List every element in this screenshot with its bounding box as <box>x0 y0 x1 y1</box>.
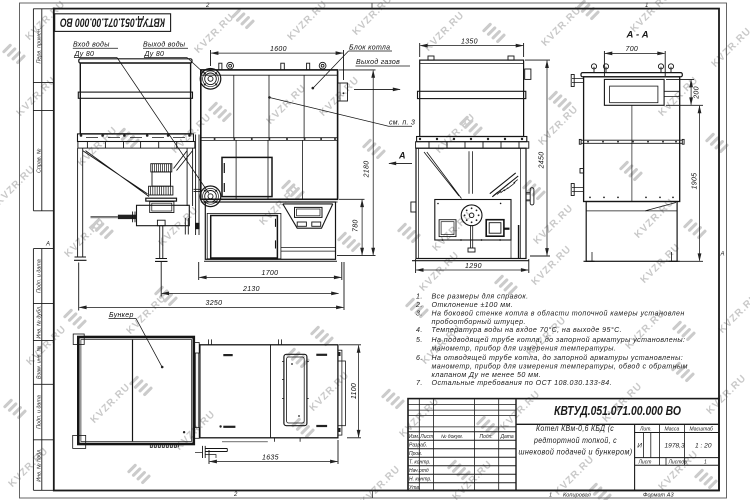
svg-text:Справ. №: Справ. № <box>36 148 42 173</box>
svg-text:И: И <box>637 443 642 450</box>
svg-text:KVZR.RU: KVZR.RU <box>25 324 69 368</box>
svg-text:1905: 1905 <box>692 173 699 190</box>
svg-text:шнековой подачей и бункером): шнековой подачей и бункером) <box>519 447 633 456</box>
svg-text:Выход газов: Выход газов <box>356 58 400 66</box>
svg-text:KVZR.RU: KVZR.RU <box>717 292 750 336</box>
svg-text:Разраб.: Разраб. <box>409 443 427 449</box>
svg-text:На подводящей трубе котла, до: На подводящей трубе котла, до запорной а… <box>432 336 686 344</box>
svg-text:Дата: Дата <box>500 434 514 440</box>
svg-text:А - А: А - А <box>626 30 649 41</box>
svg-text:KVZR.RU: KVZR.RU <box>434 112 478 156</box>
svg-text:KVZR.RU: KVZR.RU <box>89 382 133 426</box>
svg-text:KVZR.RU: KVZR.RU <box>540 5 584 49</box>
svg-text:7.: 7. <box>416 379 423 387</box>
svg-text:KVZR.RU: KVZR.RU <box>193 12 237 56</box>
svg-text:1350: 1350 <box>461 38 478 45</box>
svg-text:2: 2 <box>205 3 210 9</box>
svg-text:Листов: Листов <box>668 459 688 465</box>
svg-text:Подп. и дата: Подп. и дата <box>36 395 42 429</box>
svg-text:Подп.: Подп. <box>480 434 493 440</box>
svg-text:2180: 2180 <box>364 161 371 179</box>
svg-text:манометр, прибор для измерения: манометр, прибор для измерения температу… <box>432 362 688 370</box>
svg-text:KVZR.RU: KVZR.RU <box>418 250 462 294</box>
svg-text:1: 1 <box>549 493 552 499</box>
svg-text:Все размеры для справок.: Все размеры для справок. <box>432 293 529 301</box>
svg-text:1: 1 <box>704 459 707 465</box>
svg-text:3.: 3. <box>416 309 423 317</box>
svg-text:Остальные требования по ОСТ 10: Остальные требования по ОСТ 108.030.133-… <box>432 379 613 387</box>
svg-text:А: А <box>45 242 50 248</box>
svg-text:Т. контр.: Т. контр. <box>409 460 431 466</box>
svg-text:5.: 5. <box>416 336 423 344</box>
svg-text:KVZR.RU: KVZR.RU <box>63 216 107 260</box>
svg-text:2450: 2450 <box>539 152 546 170</box>
svg-text:1635: 1635 <box>262 454 279 461</box>
svg-text:700: 700 <box>626 46 639 53</box>
svg-text:манометр, прибор для измерения: манометр, прибор для измерения температу… <box>432 344 617 352</box>
svg-text:1700: 1700 <box>262 270 279 277</box>
svg-text:Бункер: Бункер <box>109 312 134 319</box>
svg-text:Нач.отд: Нач.отд <box>409 468 429 474</box>
svg-text:Утв.: Утв. <box>409 485 420 491</box>
svg-text:Выход воды: Выход воды <box>143 41 186 49</box>
svg-text:2: 2 <box>233 492 238 498</box>
svg-text:А: А <box>720 252 725 258</box>
svg-text:№ докум.: № докум. <box>441 434 463 440</box>
svg-text:Лит.: Лит. <box>639 427 652 433</box>
svg-text:КВТУД.051.071.00.000 ВО: КВТУД.051.071.00.000 ВО <box>60 16 165 28</box>
svg-text:редтортной топкой, с: редтортной топкой, с <box>533 436 617 445</box>
svg-text:KVZR.RU: KVZR.RU <box>532 203 576 247</box>
svg-text:Лист: Лист <box>419 434 433 440</box>
svg-text:KVZR.RU: KVZR.RU <box>351 0 395 38</box>
svg-text:клапаном Ду не менее 50 мм.: клапаном Ду не менее 50 мм. <box>432 371 542 379</box>
svg-text:KVZR.RU: KVZR.RU <box>537 104 581 148</box>
svg-text:KVZR.RU: KVZR.RU <box>0 164 38 208</box>
svg-text:Блок котла: Блок котла <box>349 44 390 51</box>
svg-text:1600: 1600 <box>270 46 287 53</box>
svg-text:На отводящей трубе котла, до з: На отводящей трубе котла, до запорной ар… <box>432 354 684 362</box>
svg-text:Масса: Масса <box>665 427 680 433</box>
svg-text:KVZR.RU: KVZR.RU <box>530 244 574 288</box>
svg-text:KVZR.RU: KVZR.RU <box>601 381 645 425</box>
svg-text:KVZR.RU: KVZR.RU <box>633 197 677 241</box>
svg-text:KVZR.RU: KVZR.RU <box>359 464 403 500</box>
svg-text:Ду 80: Ду 80 <box>144 51 165 58</box>
svg-text:пробоотборный штуцер.: пробоотборный штуцер. <box>432 318 526 326</box>
svg-text:Температура воды на вхдое 70°С: Температура воды на вхдое 70°С, на выход… <box>432 326 623 334</box>
svg-text:Перв. примен.: Перв. примен. <box>36 28 42 64</box>
svg-text:KVZR.RU: KVZR.RU <box>451 459 495 500</box>
svg-text:KVZR.RU: KVZR.RU <box>423 10 467 54</box>
svg-text:Копировал: Копировал <box>563 493 592 499</box>
svg-text:KVZR.RU: KVZR.RU <box>710 26 750 70</box>
svg-text:А: А <box>398 151 406 161</box>
svg-text:Пров.: Пров. <box>409 451 422 457</box>
svg-text:6.: 6. <box>416 354 423 362</box>
svg-text:Взам. инв. №: Взам. инв. № <box>36 345 42 379</box>
svg-text:Масштаб: Масштаб <box>690 427 714 433</box>
svg-text:Котел КВм-0,6 КБД (с: Котел КВм-0,6 КБД (с <box>536 424 614 433</box>
svg-text:Лист: Лист <box>638 459 652 465</box>
svg-text:200: 200 <box>693 86 700 100</box>
svg-text:KVZR.RU: KVZR.RU <box>398 396 442 440</box>
svg-text:KVZR.RU: KVZR.RU <box>286 0 330 43</box>
svg-text:2.: 2. <box>415 301 423 309</box>
svg-text:1100: 1100 <box>351 383 358 399</box>
svg-text:780: 780 <box>353 219 360 232</box>
svg-text:3250: 3250 <box>206 300 223 307</box>
svg-text:1 : 20: 1 : 20 <box>695 443 712 450</box>
svg-text:KVZR.RU: KVZR.RU <box>7 446 51 490</box>
svg-text:KVZR.RU: KVZR.RU <box>639 242 683 286</box>
svg-text:Инв. № дубл.: Инв. № дубл. <box>36 305 42 338</box>
svg-text:Ду 80: Ду 80 <box>74 51 95 58</box>
svg-text:1290: 1290 <box>465 263 482 270</box>
svg-text:Вход воды: Вход воды <box>73 41 110 49</box>
svg-text:2130: 2130 <box>242 286 260 293</box>
svg-text:1.: 1. <box>416 293 423 301</box>
svg-text:Формат А3: Формат А3 <box>643 493 674 499</box>
svg-text:KVZR.RU: KVZR.RU <box>15 75 59 119</box>
svg-text:1978,3: 1978,3 <box>665 443 686 450</box>
svg-text:KVZR.RU: KVZR.RU <box>657 449 701 493</box>
svg-text:Н. контр.: Н. контр. <box>409 477 432 483</box>
svg-text:На боковой стенке котла в обла: На боковой стенке котла в области топочн… <box>432 309 685 317</box>
svg-text:4.: 4. <box>416 326 423 334</box>
svg-text:1: 1 <box>645 3 648 9</box>
svg-text:KVZR.RU: KVZR.RU <box>431 210 475 254</box>
svg-text:Отклонение ±100 мм.: Отклонение ±100 мм. <box>432 301 514 309</box>
svg-text:KVZR.RU: KVZR.RU <box>265 83 309 127</box>
svg-text:Изм.: Изм. <box>409 434 420 440</box>
svg-text:КВТУД.051.071.00.000 ВО: КВТУД.051.071.00.000 ВО <box>554 404 681 418</box>
svg-text:Подп. и дата: Подп. и дата <box>36 259 42 293</box>
svg-text:см. п. 3: см. п. 3 <box>389 120 415 127</box>
svg-text:Инв. № подл.: Инв. № подл. <box>36 448 42 481</box>
